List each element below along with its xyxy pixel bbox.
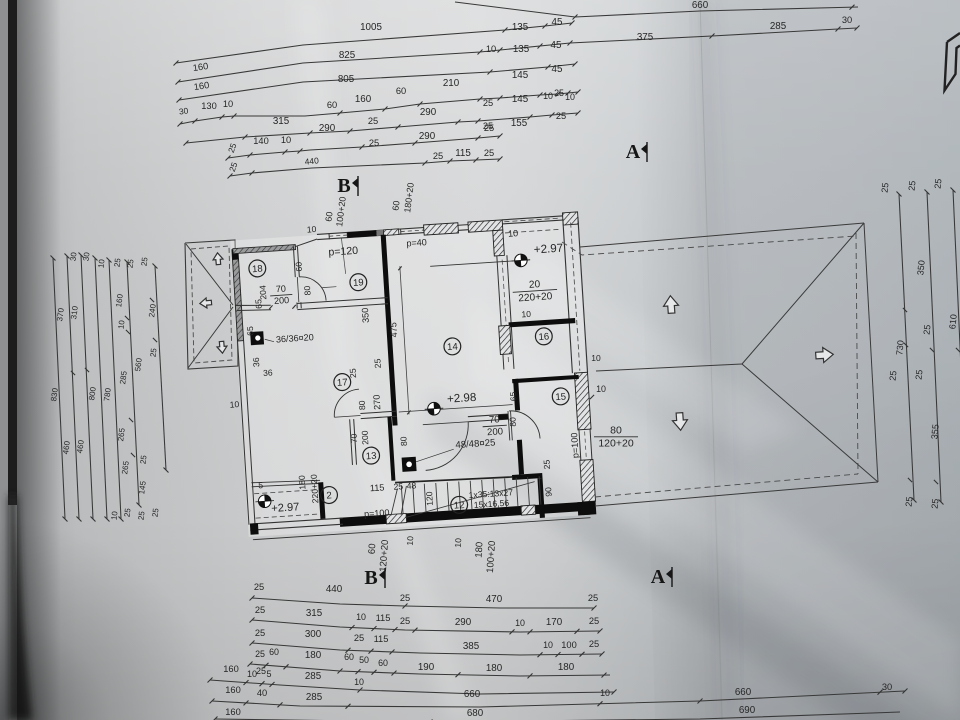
svg-text:25: 25 <box>483 98 493 108</box>
svg-text:290: 290 <box>420 107 437 118</box>
svg-text:80: 80 <box>507 417 518 427</box>
svg-text:10: 10 <box>515 618 525 628</box>
svg-text:115: 115 <box>455 148 471 159</box>
svg-text:60: 60 <box>293 261 304 271</box>
svg-text:25: 25 <box>255 605 265 615</box>
svg-text:145: 145 <box>512 94 529 105</box>
svg-text:610: 610 <box>947 314 959 330</box>
svg-text:805: 805 <box>338 74 355 85</box>
svg-text:18: 18 <box>252 264 263 276</box>
svg-text:190: 190 <box>418 662 435 673</box>
svg-text:25: 25 <box>123 507 133 517</box>
svg-text:+2.97: +2.97 <box>533 242 563 257</box>
svg-text:10: 10 <box>97 258 107 268</box>
svg-text:30: 30 <box>882 682 892 692</box>
svg-text:300: 300 <box>305 629 322 640</box>
svg-text:170: 170 <box>546 617 563 628</box>
svg-text:115: 115 <box>370 482 385 493</box>
svg-text:25: 25 <box>433 151 443 161</box>
svg-text:B: B <box>337 175 350 197</box>
svg-text:825: 825 <box>339 50 356 61</box>
svg-text:115: 115 <box>376 613 391 623</box>
svg-text:25: 25 <box>113 257 123 267</box>
svg-text:180: 180 <box>305 650 322 661</box>
svg-text:660: 660 <box>735 687 752 698</box>
svg-text:135: 135 <box>512 22 529 33</box>
svg-text:310: 310 <box>69 305 80 320</box>
svg-text:A: A <box>651 566 666 588</box>
svg-text:265: 265 <box>120 460 131 475</box>
svg-text:10: 10 <box>306 224 316 235</box>
svg-text:265: 265 <box>116 427 127 442</box>
svg-text:65: 65 <box>245 326 256 336</box>
svg-text:25: 25 <box>254 582 264 592</box>
svg-text:730: 730 <box>894 340 906 356</box>
svg-text:10: 10 <box>596 384 606 394</box>
svg-text:145: 145 <box>512 70 529 81</box>
svg-text:30: 30 <box>842 15 852 25</box>
svg-text:25: 25 <box>904 496 915 507</box>
svg-text:25: 25 <box>348 368 359 378</box>
svg-text:210: 210 <box>443 78 460 89</box>
svg-text:285: 285 <box>306 692 323 703</box>
svg-text:200: 200 <box>274 295 290 306</box>
svg-text:25: 25 <box>139 454 149 464</box>
svg-text:45: 45 <box>552 64 563 75</box>
svg-text:80: 80 <box>398 436 409 446</box>
svg-text:120: 120 <box>424 491 435 506</box>
svg-text:25: 25 <box>255 628 265 638</box>
svg-text:350: 350 <box>915 260 927 276</box>
svg-text:10: 10 <box>521 309 531 320</box>
svg-text:25: 25 <box>151 507 161 517</box>
svg-text:830: 830 <box>49 387 60 402</box>
svg-text:60: 60 <box>396 86 406 96</box>
svg-text:17: 17 <box>337 377 348 389</box>
svg-text:460: 460 <box>75 439 86 454</box>
svg-text:780: 780 <box>102 387 113 402</box>
svg-text:25: 25 <box>914 369 925 380</box>
svg-text:60: 60 <box>344 652 354 662</box>
svg-text:80: 80 <box>302 285 313 295</box>
svg-text:10: 10 <box>354 677 364 687</box>
svg-text:70: 70 <box>349 433 360 443</box>
svg-text:25: 25 <box>933 178 944 189</box>
svg-text:10: 10 <box>591 353 601 363</box>
svg-text:285: 285 <box>305 671 322 682</box>
svg-text:B: B <box>364 567 377 589</box>
svg-text:80: 80 <box>357 400 368 410</box>
svg-text:370: 370 <box>55 307 66 322</box>
svg-text:385: 385 <box>463 641 480 652</box>
svg-text:45: 45 <box>551 40 562 51</box>
svg-text:60: 60 <box>390 200 401 211</box>
svg-text:10: 10 <box>229 399 239 410</box>
svg-text:10: 10 <box>117 319 127 329</box>
svg-text:470: 470 <box>486 594 503 605</box>
svg-text:25: 25 <box>484 148 494 158</box>
svg-text:120+20: 120+20 <box>598 438 633 450</box>
svg-text:220+20: 220+20 <box>309 474 321 504</box>
svg-text:60: 60 <box>323 211 334 222</box>
svg-text:60: 60 <box>327 100 337 110</box>
svg-text:290: 290 <box>319 123 336 134</box>
svg-text:315: 315 <box>273 116 290 127</box>
svg-text:14: 14 <box>447 341 459 353</box>
svg-text:10: 10 <box>405 535 416 545</box>
svg-text:130: 130 <box>201 101 217 111</box>
svg-text:13: 13 <box>366 451 377 463</box>
svg-text:+2.98: +2.98 <box>447 391 477 406</box>
svg-text:70: 70 <box>275 283 286 294</box>
svg-text:45: 45 <box>552 17 563 28</box>
svg-text:145: 145 <box>137 480 148 495</box>
svg-text:25: 25 <box>393 481 403 492</box>
svg-text:25: 25 <box>256 666 266 676</box>
svg-text:440: 440 <box>326 584 343 595</box>
svg-text:100+20: 100+20 <box>485 540 498 573</box>
svg-text:560: 560 <box>133 357 144 372</box>
svg-text:25: 25 <box>589 639 599 649</box>
svg-text:375: 375 <box>637 32 654 43</box>
svg-text:1005: 1005 <box>360 22 382 33</box>
svg-text:160: 160 <box>225 707 241 717</box>
svg-text:160: 160 <box>193 80 210 92</box>
svg-text:290: 290 <box>455 617 472 628</box>
svg-text:120+20: 120+20 <box>378 539 391 572</box>
svg-text:690: 690 <box>739 705 756 716</box>
svg-text:25: 25 <box>556 111 566 121</box>
svg-text:p=100: p=100 <box>569 432 581 458</box>
svg-text:15: 15 <box>555 391 566 403</box>
svg-text:660: 660 <box>464 689 481 700</box>
svg-text:10: 10 <box>508 228 519 239</box>
svg-text:460: 460 <box>61 440 72 455</box>
svg-text:660: 660 <box>692 0 709 11</box>
svg-text:25: 25 <box>372 358 383 368</box>
svg-text:10: 10 <box>110 510 120 520</box>
svg-text:19: 19 <box>353 277 364 289</box>
svg-text:475: 475 <box>388 322 399 338</box>
svg-text:10: 10 <box>600 688 610 698</box>
svg-text:204: 204 <box>257 285 268 300</box>
svg-text:10: 10 <box>281 135 291 145</box>
svg-text:25: 25 <box>588 593 598 603</box>
svg-text:48: 48 <box>406 480 416 491</box>
svg-text:p=100: p=100 <box>364 508 390 520</box>
svg-text:40: 40 <box>257 688 267 698</box>
svg-text:25: 25 <box>137 510 147 520</box>
svg-text:10: 10 <box>543 640 553 650</box>
svg-text:140: 140 <box>253 136 269 146</box>
svg-text:36: 36 <box>251 357 262 367</box>
svg-text:25: 25 <box>369 138 379 148</box>
svg-text:440: 440 <box>304 155 319 166</box>
svg-text:60: 60 <box>378 658 388 668</box>
svg-text:80: 80 <box>610 425 622 437</box>
svg-text:115: 115 <box>374 634 389 644</box>
svg-text:800: 800 <box>87 386 98 401</box>
svg-text:100: 100 <box>561 640 577 650</box>
svg-text:p=40: p=40 <box>406 237 427 248</box>
svg-text:25: 25 <box>140 256 150 266</box>
svg-text:+2.97: +2.97 <box>271 501 300 515</box>
svg-text:25: 25 <box>368 116 378 126</box>
svg-text:180: 180 <box>558 662 575 673</box>
svg-text:10: 10 <box>356 612 366 622</box>
svg-text:10: 10 <box>565 92 575 102</box>
svg-text:160: 160 <box>192 61 209 73</box>
svg-text:25: 25 <box>149 347 159 357</box>
svg-text:680: 680 <box>467 708 484 719</box>
svg-text:20: 20 <box>529 279 541 291</box>
svg-text:180: 180 <box>486 663 503 674</box>
svg-text:25: 25 <box>922 324 933 335</box>
svg-text:315: 315 <box>306 608 323 619</box>
svg-text:65: 65 <box>508 391 519 401</box>
svg-text:12: 12 <box>454 500 465 512</box>
svg-text:25: 25 <box>930 498 941 509</box>
svg-text:10: 10 <box>453 537 464 547</box>
svg-text:10: 10 <box>543 91 553 101</box>
svg-text:90: 90 <box>543 487 554 497</box>
svg-text:355: 355 <box>929 424 941 440</box>
svg-text:25: 25 <box>354 633 364 643</box>
svg-text:350: 350 <box>360 307 371 323</box>
svg-text:2: 2 <box>326 490 332 501</box>
svg-text:25: 25 <box>400 593 410 603</box>
svg-text:10: 10 <box>486 44 496 54</box>
svg-text:180: 180 <box>473 541 485 558</box>
svg-text:160: 160 <box>225 685 241 695</box>
svg-text:240: 240 <box>147 303 158 318</box>
svg-text:180: 180 <box>297 475 308 490</box>
svg-text:50: 50 <box>359 655 369 665</box>
svg-text:16: 16 <box>538 331 549 343</box>
svg-text:25: 25 <box>554 88 564 98</box>
svg-text:5: 5 <box>266 669 271 679</box>
svg-text:25: 25 <box>400 616 410 626</box>
svg-text:25: 25 <box>880 182 891 193</box>
svg-text:60: 60 <box>269 647 279 657</box>
svg-text:220+20: 220+20 <box>518 291 553 304</box>
svg-text:25: 25 <box>126 258 136 268</box>
svg-text:36: 36 <box>263 367 273 378</box>
svg-text:270: 270 <box>372 394 383 410</box>
svg-text:5: 5 <box>258 480 264 490</box>
svg-text:30: 30 <box>69 251 79 261</box>
svg-text:70: 70 <box>489 414 500 426</box>
svg-text:135: 135 <box>513 44 530 55</box>
svg-text:25: 25 <box>907 180 918 191</box>
svg-text:25: 25 <box>541 459 552 469</box>
svg-text:10: 10 <box>223 99 233 109</box>
svg-text:60: 60 <box>367 543 379 554</box>
svg-text:25: 25 <box>589 616 599 626</box>
svg-text:160: 160 <box>114 293 125 308</box>
svg-text:285: 285 <box>770 21 787 32</box>
svg-text:A: A <box>626 141 641 163</box>
svg-text:30: 30 <box>178 105 189 116</box>
svg-text:155: 155 <box>511 118 528 129</box>
svg-text:25: 25 <box>888 370 899 381</box>
svg-text:25: 25 <box>255 649 265 659</box>
svg-text:200: 200 <box>487 426 504 438</box>
svg-text:290: 290 <box>419 131 436 142</box>
svg-text:285: 285 <box>118 370 129 385</box>
svg-text:200: 200 <box>360 430 371 445</box>
svg-text:160: 160 <box>223 664 239 674</box>
svg-text:25: 25 <box>484 123 494 133</box>
svg-text:160: 160 <box>355 94 372 105</box>
svg-text:30: 30 <box>82 251 92 261</box>
